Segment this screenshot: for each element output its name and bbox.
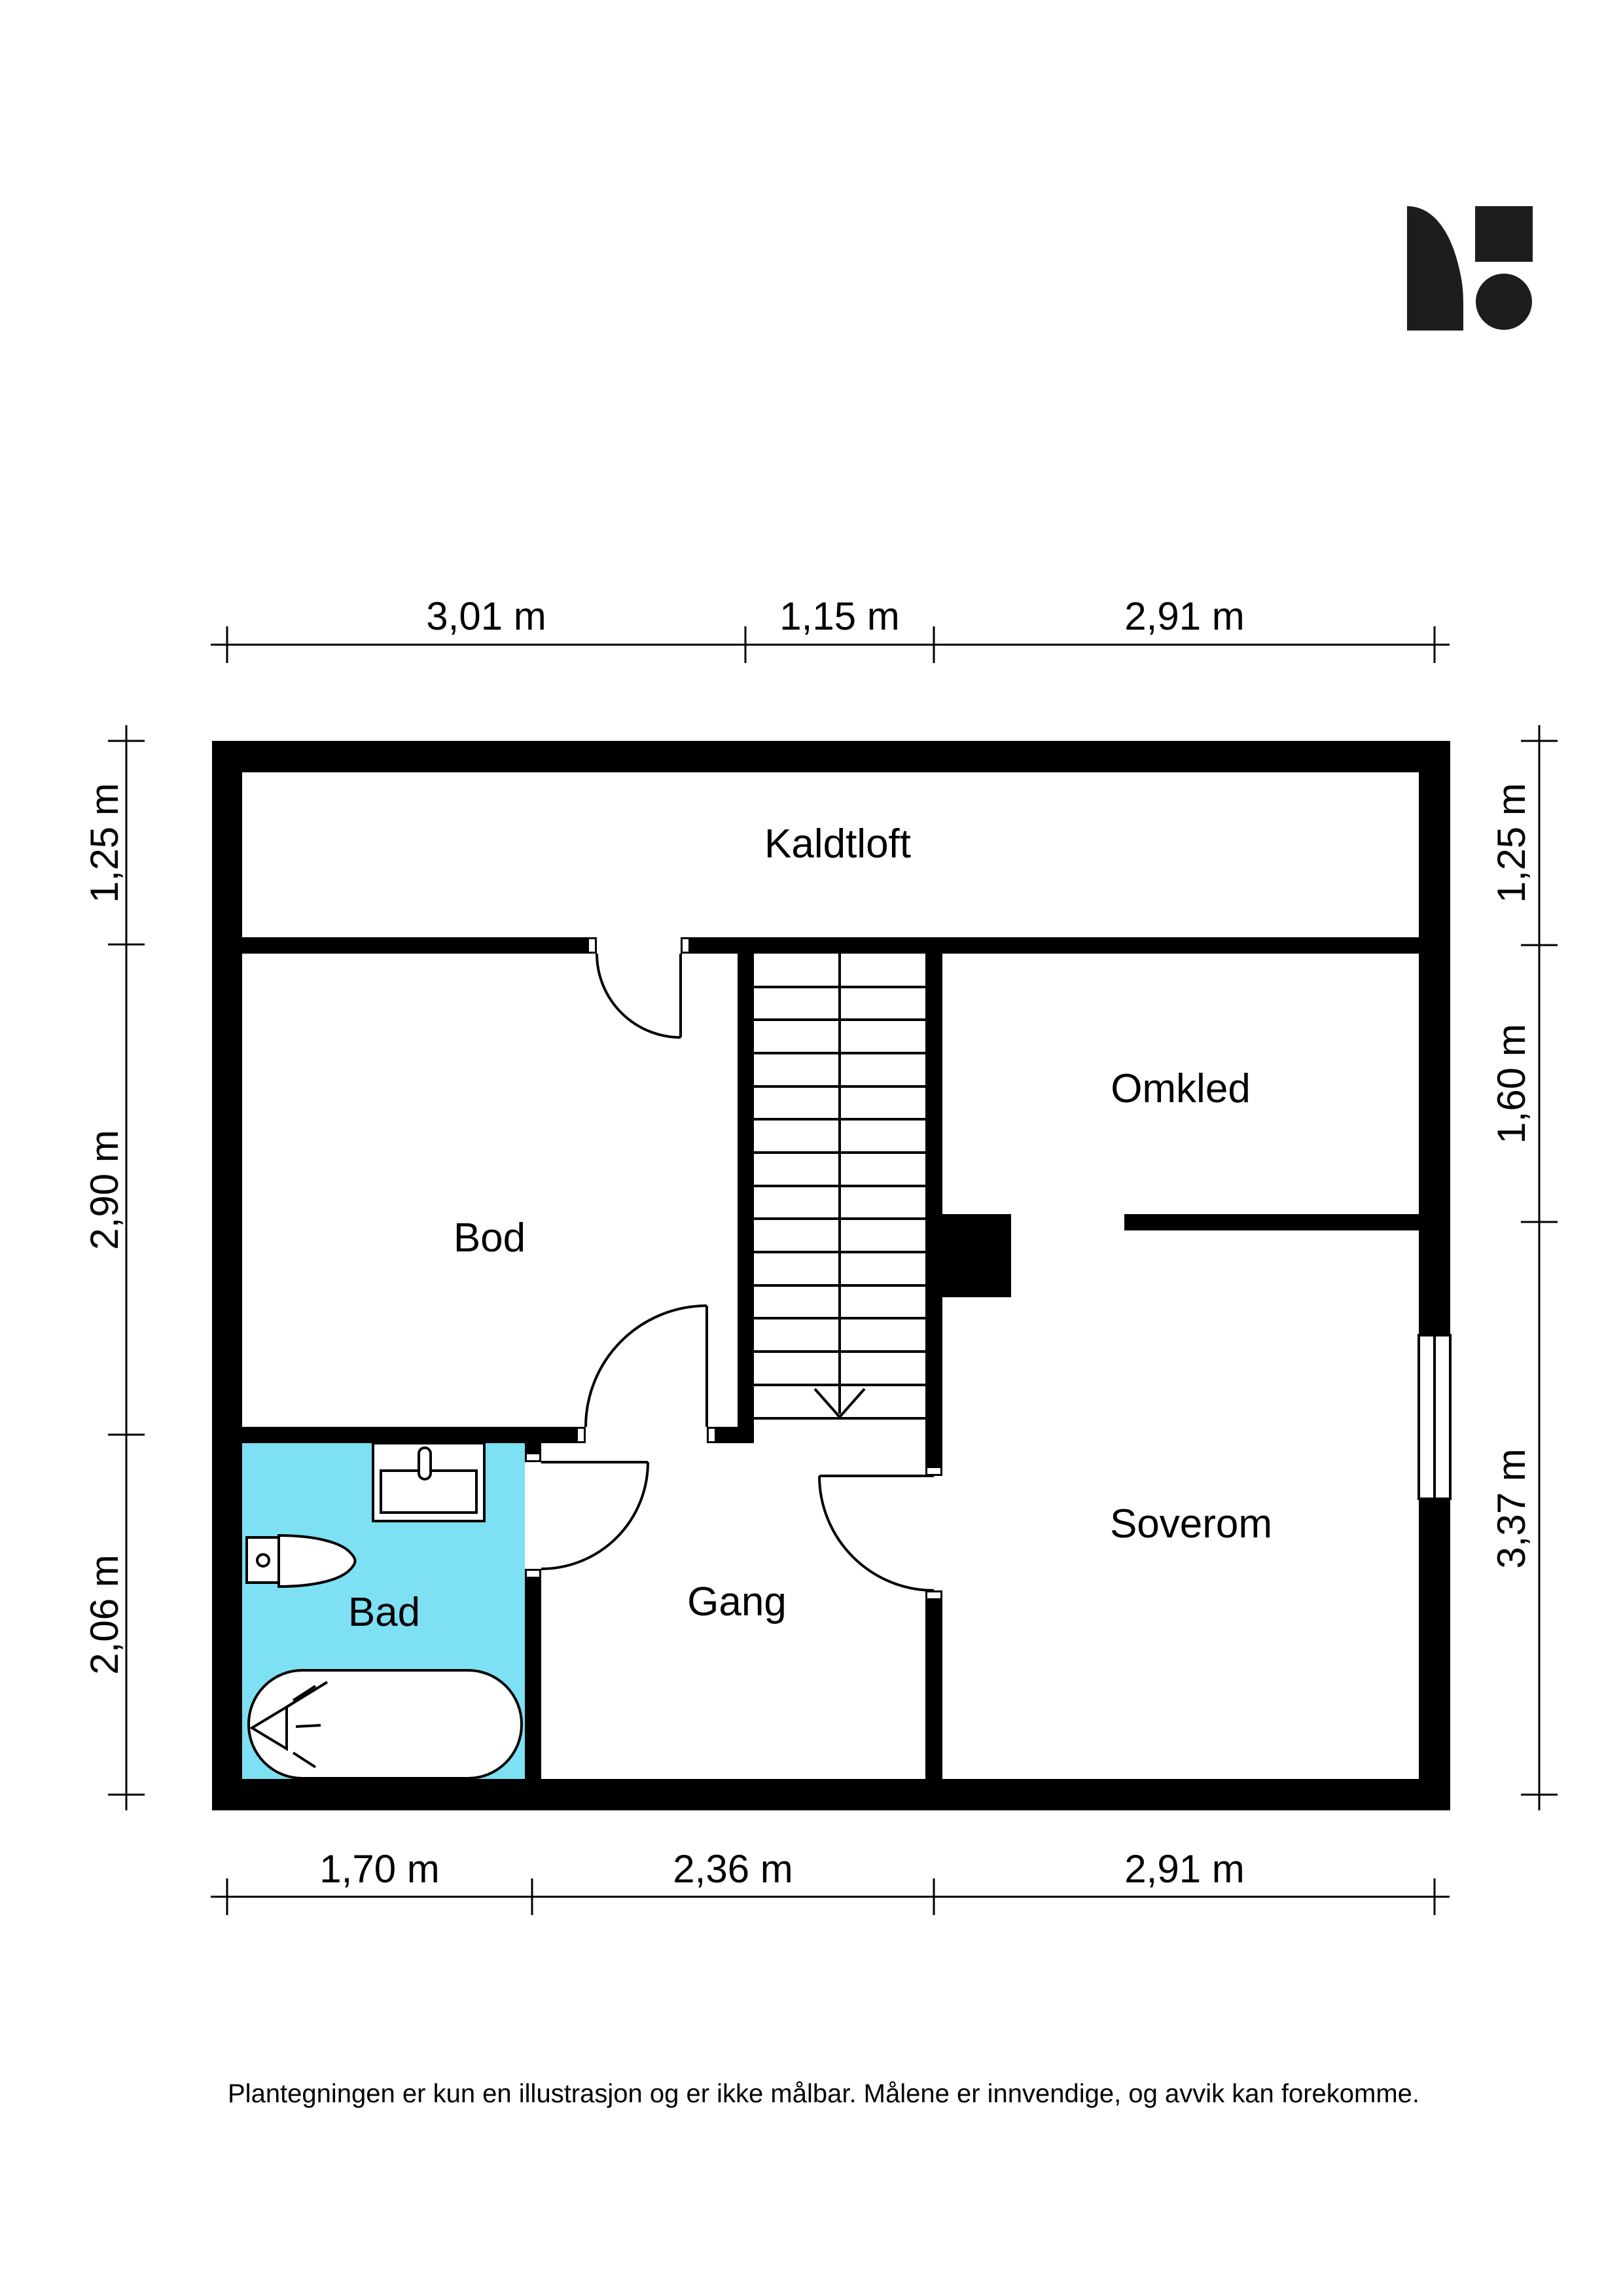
jamb (578, 1429, 584, 1441)
sink-vanity-icon (373, 1443, 484, 1521)
room-label-kaldtloft: Kaldtloft (764, 821, 911, 867)
floorplan-drawing: Kaldtloft Bod Omkled Soverom Gang Bad 3,… (0, 0, 1623, 2296)
dimension-top: 3,01 m 1,15 m 2,91 m (211, 594, 1450, 663)
dim-bottom-3: 2,91 m (1124, 1847, 1244, 1891)
wall-top (212, 741, 1450, 772)
floorplan-page: Kaldtloft Bod Omkled Soverom Gang Bad 3,… (0, 0, 1623, 2296)
dimension-right: 1,25 m 1,60 m 3,37 m (1489, 725, 1558, 1810)
kaldtloft-wall-left-segment (242, 937, 597, 954)
omkled-soverom-wall (1124, 1214, 1419, 1230)
door-soverom (819, 1476, 934, 1590)
dim-bottom-2: 2,36 m (673, 1847, 793, 1891)
dim-bottom-1: 1,70 m (319, 1847, 439, 1891)
wall-right-upper (1419, 741, 1450, 1335)
door-bod (586, 1306, 707, 1427)
jamb (527, 1571, 539, 1577)
dimension-left: 1,25 m 2,90 m 2,06 m (82, 725, 145, 1810)
dim-left-3: 2,06 m (82, 1554, 126, 1674)
room-label-bad: Bad (348, 1590, 420, 1635)
jamb (927, 1592, 940, 1598)
brand-logo-icon (1407, 206, 1533, 331)
jamb (927, 1468, 940, 1474)
door-jambs (527, 939, 940, 1598)
room-label-bod: Bod (454, 1215, 526, 1261)
logo-circle (1476, 274, 1532, 330)
room-label-omkled: Omkled (1111, 1066, 1251, 1111)
kaldtloft-wall-right-segment (681, 937, 1419, 954)
stair-wall-right-upper (925, 954, 942, 1476)
bathtub-icon (249, 1670, 522, 1778)
stair-wall-right-lower (925, 1590, 942, 1779)
dim-left-1: 1,25 m (82, 783, 126, 903)
wall-right-lower (1419, 1499, 1450, 1810)
wall-left (212, 741, 242, 1810)
staircase (754, 954, 925, 1418)
wall-bottom (212, 1779, 1450, 1810)
dim-top-2: 1,15 m (779, 594, 899, 638)
stair-wall-left (738, 954, 754, 1443)
disclaimer-text: Plantegningen er kun en illustrasjon og … (228, 2079, 1419, 2108)
dimension-bottom: 1,70 m 2,36 m 2,91 m (211, 1847, 1450, 1915)
logo-square (1475, 206, 1533, 262)
dim-right-1: 1,25 m (1489, 783, 1533, 903)
chimney-block (942, 1214, 1011, 1297)
dim-top-1: 3,01 m (426, 594, 546, 638)
jamb (527, 1454, 539, 1460)
jamb (709, 1429, 715, 1441)
logo-sail-shape (1407, 206, 1463, 331)
dim-right-2: 1,60 m (1489, 1024, 1533, 1143)
door-kaldtloft (597, 954, 681, 1037)
jamb (683, 939, 688, 952)
room-label-soverom: Soverom (1110, 1501, 1272, 1547)
window-soverom (1419, 1335, 1450, 1499)
bad-east-wall-lower (525, 1569, 541, 1779)
bod-south-wall-left (242, 1427, 586, 1443)
jamb (589, 939, 595, 952)
room-label-gang: Gang (687, 1579, 787, 1624)
dim-left-2: 2,90 m (82, 1130, 126, 1249)
dim-top-3: 2,91 m (1124, 594, 1244, 638)
door-bad (541, 1462, 648, 1569)
dim-right-3: 3,37 m (1489, 1448, 1533, 1568)
